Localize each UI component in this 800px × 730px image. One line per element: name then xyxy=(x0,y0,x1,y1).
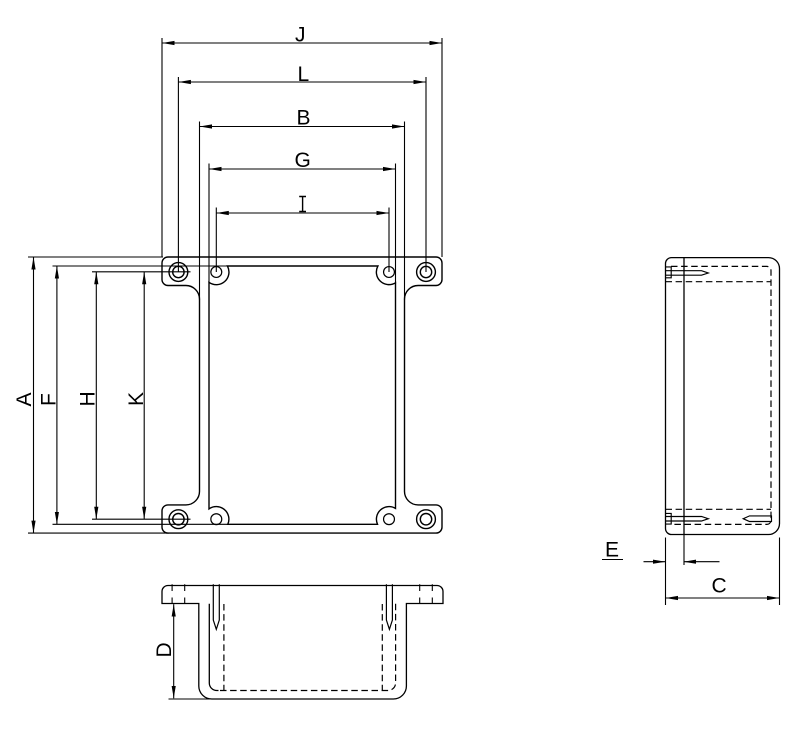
svg-text:L: L xyxy=(298,63,310,86)
svg-text:B: B xyxy=(297,107,311,130)
svg-text:G: G xyxy=(295,149,311,172)
svg-text:K: K xyxy=(125,392,148,406)
svg-text:J: J xyxy=(295,24,306,47)
svg-text:C: C xyxy=(712,575,727,598)
svg-text:E: E xyxy=(605,539,619,562)
svg-text:F: F xyxy=(38,393,61,406)
svg-text:A: A xyxy=(13,392,36,406)
svg-text:D: D xyxy=(153,642,176,657)
svg-text:H: H xyxy=(77,391,100,406)
